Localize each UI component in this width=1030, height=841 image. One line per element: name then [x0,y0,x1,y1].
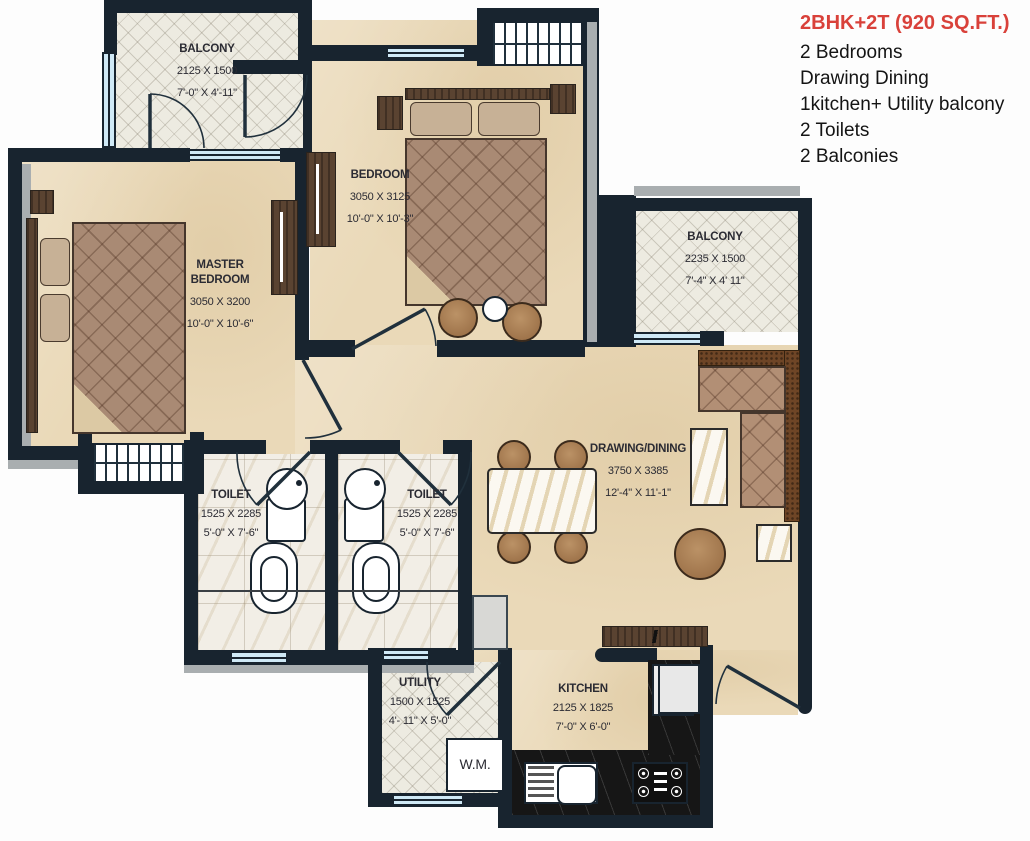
door-arc [425,309,436,346]
door-leaf [303,360,341,430]
room-label-balcony-top-left: BALCONY 2125 X 1500 7'-0" X 4'-11" [118,42,296,101]
room-label-master-bedroom: MASTER BEDROOM 3050 X 3200 10'-0" X 10'-… [150,258,290,332]
legend-item: 2 Bedrooms [800,40,1026,66]
legend: 2BHK+2T (920 SQ.FT.) 2 Bedrooms Drawing … [800,12,1026,170]
room-label-balcony-right: BALCONY 2235 X 1500 7'-4" X 4' 11" [640,230,790,289]
door-leaf [727,666,800,708]
room-label-utility: UTILITY 1500 X 1525 4'- 11" X 5'-0" [374,676,466,729]
kitchen-door-panel [658,664,700,714]
room-label-toilet-left: TOILET 1525 X 2285 5'-0" X 7'-6" [196,488,266,541]
room-label-bedroom: BEDROOM 3050 X 3125 10'-0" X 10'-3" [300,168,460,227]
room-label-toilet-right: TOILET 1525 X 2285 5'-0" X 7'-6" [392,488,462,541]
door-arc [716,666,727,704]
floor-plan: W.M. [0,0,1030,841]
washing-machine-label: W.M. [448,757,502,772]
room-label-kitchen: KITCHEN 2125 X 1825 7'-0" X 6'-0" [518,682,648,735]
legend-item: 1kitchen+ Utility balcony [800,92,1026,118]
legend-title: 2BHK+2T (920 SQ.FT.) [800,12,1026,35]
legend-item: 2 Toilets [800,118,1026,144]
door-arc [150,94,204,148]
door-arc [305,430,341,438]
legend-item: 2 Balconies [800,144,1026,170]
legend-item: Drawing Dining [800,66,1026,92]
door-leaf [352,309,425,349]
room-label-drawing-dining: DRAWING/DINING 3750 X 3385 12'-4" X 11'-… [562,442,714,501]
